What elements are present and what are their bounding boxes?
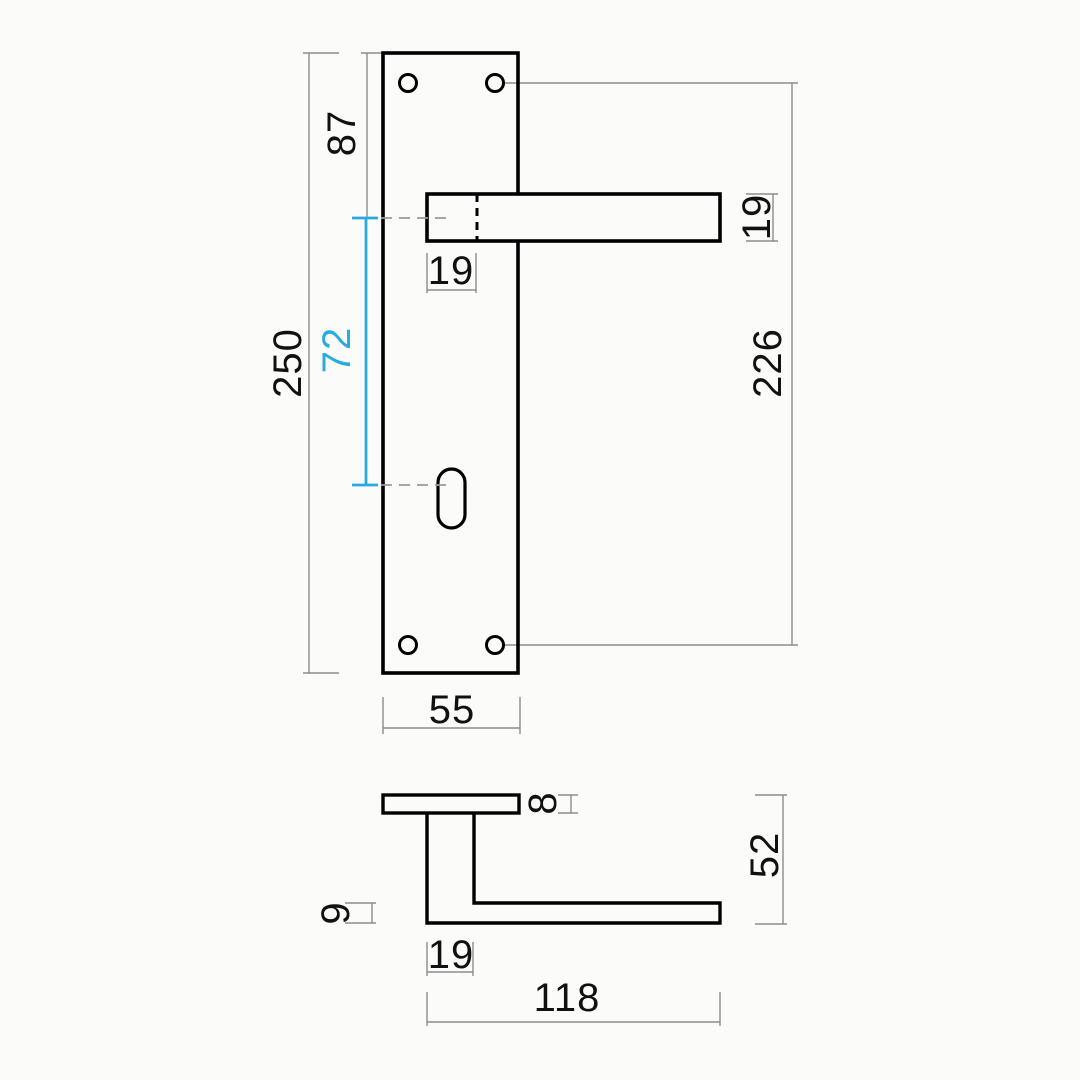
dim-label-screw-spacing: 226 — [748, 328, 788, 398]
lever-handle-side-profile — [427, 813, 720, 923]
dim-label-plate-thickness: 8 — [523, 791, 563, 814]
screw-hole-top-right — [487, 75, 504, 92]
lever-handle-front-outline — [427, 194, 720, 241]
dim-label-center-distance: 72 — [317, 327, 357, 374]
keyhole-outline — [438, 469, 465, 528]
dim-label-spindle-inset: 19 — [428, 251, 475, 291]
front-view-dimension-lines — [303, 53, 798, 734]
dim-label-arm-thickness: 9 — [316, 901, 356, 924]
screw-hole-top-left — [400, 75, 417, 92]
screw-hole-bottom-right — [487, 637, 504, 654]
dim-label-lever-height: 19 — [737, 194, 777, 241]
dim-label-plate-width: 55 — [429, 690, 476, 730]
dim-label-handle-length: 118 — [534, 978, 601, 1018]
backplate-outline — [383, 53, 518, 673]
dim-label-top-to-handle: 87 — [322, 110, 362, 157]
dim-label-neck-width: 19 — [428, 935, 475, 975]
dim-label-total-projection: 52 — [745, 832, 785, 879]
drawing-linework — [0, 0, 1080, 1080]
drawing-canvas: 250 87 72 19 19 226 55 8 9 52 19 118 — [0, 0, 1080, 1080]
dim-label-plate-height: 250 — [268, 328, 308, 398]
screw-hole-bottom-left — [400, 637, 417, 654]
rose-plate-side-outline — [383, 795, 519, 813]
